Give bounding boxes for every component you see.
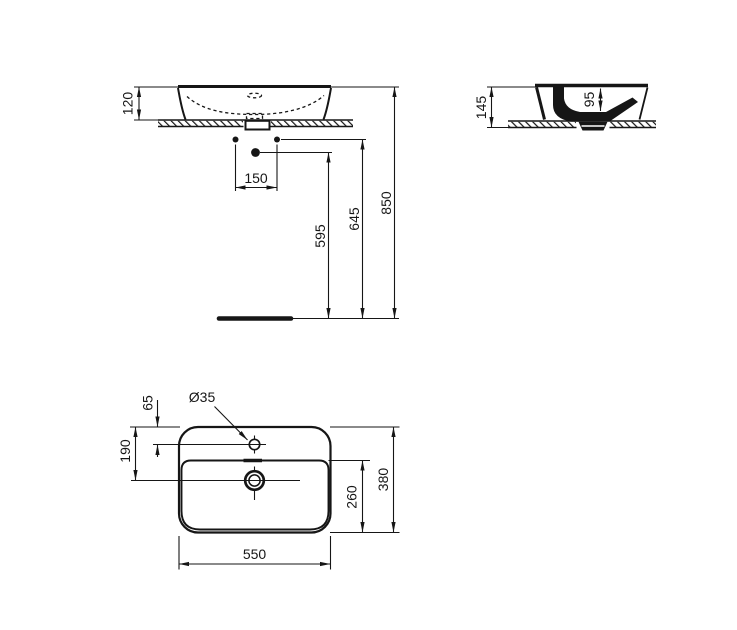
drain-outlet-point bbox=[251, 148, 260, 157]
dim-label-595: 595 bbox=[312, 224, 328, 248]
side-view: 95 145 bbox=[473, 86, 656, 131]
dim-label-120: 120 bbox=[120, 92, 136, 116]
front-view: 120 150 595 645 850 bbox=[120, 87, 400, 319]
washbasin-technical-drawing: 120 150 595 645 850 95 bbox=[0, 0, 737, 630]
outer-wall-left bbox=[537, 87, 545, 119]
drain-hidden-contour bbox=[247, 114, 263, 119]
dim-label-380: 380 bbox=[375, 468, 391, 492]
counter-hatch bbox=[508, 122, 576, 127]
overflow-hidden-contour bbox=[248, 93, 262, 98]
dim-label-260: 260 bbox=[344, 485, 360, 509]
dim-label-190: 190 bbox=[117, 439, 133, 463]
dim-label-145: 145 bbox=[473, 96, 489, 120]
counter-hatch bbox=[271, 121, 353, 126]
dim-label-tap-diameter: Ø35 bbox=[189, 389, 216, 405]
dim-label-150: 150 bbox=[244, 170, 268, 186]
basin-right-edge bbox=[324, 88, 332, 120]
outer-wall-right bbox=[640, 88, 648, 120]
technical-drawing-page: 120 150 595 645 850 95 bbox=[0, 0, 737, 630]
plan-view: Ø35 65 190 260 380 550 bbox=[117, 389, 400, 570]
basin-left-edge bbox=[178, 88, 186, 120]
dim-label-95: 95 bbox=[581, 92, 597, 108]
dim-label-850: 850 bbox=[378, 191, 394, 215]
waste-fitting bbox=[246, 121, 270, 130]
counter-hatch bbox=[610, 122, 656, 127]
fixing-point-left bbox=[233, 137, 239, 143]
fixing-point-right bbox=[274, 137, 280, 143]
counter-hatch bbox=[158, 121, 243, 126]
dim-label-645: 645 bbox=[346, 207, 362, 231]
dim-label-550: 550 bbox=[243, 546, 267, 562]
dim-label-65: 65 bbox=[140, 395, 156, 411]
